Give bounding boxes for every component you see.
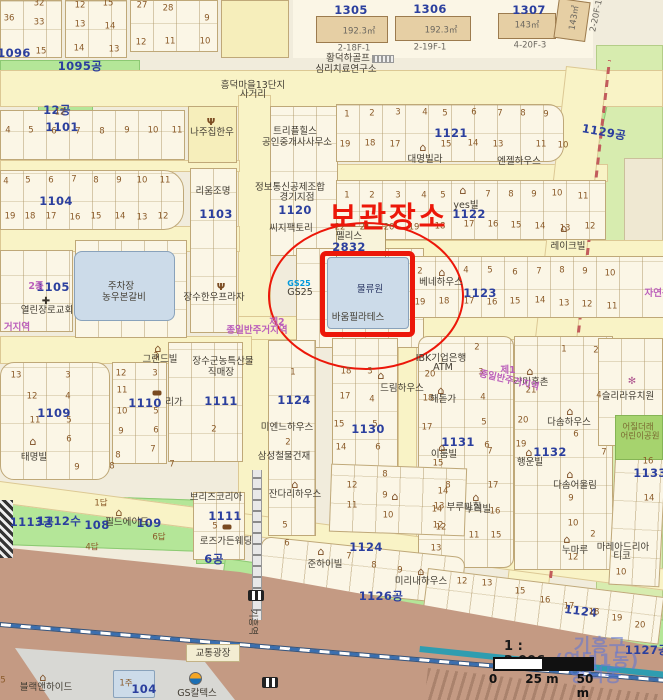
lot-number: 2 — [369, 110, 374, 119]
lot-number: 10 — [616, 569, 627, 578]
area-label: 143㎡ — [515, 22, 540, 31]
place-label: 태명빌 — [21, 453, 47, 463]
place-label: ATM — [433, 363, 453, 373]
lot-number: 27 — [137, 2, 148, 11]
house-icon: ⌂ — [318, 546, 325, 558]
lot-number: 4 — [3, 178, 8, 187]
lot-number: 11 — [160, 177, 171, 186]
lot-number: 5 — [372, 421, 377, 430]
lot-number: 14 — [336, 444, 347, 453]
lot-number: 13 — [434, 503, 445, 512]
lot-number: 5 — [66, 417, 71, 426]
lot-number: 17 — [422, 424, 433, 433]
parcel-number: 1131 — [441, 436, 475, 448]
lot-number: 8 — [93, 177, 98, 186]
lot-number: 7 — [485, 191, 490, 200]
lot-number: 12 — [582, 301, 593, 310]
place-label: 나주집한우 — [190, 128, 234, 138]
area-label: 2-18F-1 — [338, 45, 371, 54]
lot-number: 1 — [344, 111, 349, 120]
lot-number: 9 — [116, 177, 121, 186]
lot-number: 4 — [422, 109, 427, 118]
lot-number: 11 — [30, 417, 41, 426]
place-label: 심리치료연구소 — [315, 65, 376, 75]
lot-number: 7 — [601, 449, 606, 458]
lot-number: 17 — [340, 393, 351, 402]
scale-tick-50: 50 m — [577, 672, 594, 700]
area-label: 192.3㎡ — [343, 28, 376, 37]
parcel-number: 1126공 — [359, 590, 404, 602]
lot-number: 13 — [11, 372, 22, 381]
lot-number: 11 — [347, 502, 358, 511]
lot-number: 13 — [559, 300, 570, 309]
lot-number: 10 — [200, 38, 211, 47]
zoning-label: 2종 — [28, 282, 43, 292]
lot-number: 15 — [433, 460, 444, 469]
lot-number: 9 — [74, 464, 79, 473]
parcel-number: 1306 — [413, 3, 447, 15]
lot-number: 5 — [212, 523, 217, 532]
parcel-number: 1096 — [0, 47, 31, 59]
lot-number: 7 — [346, 553, 351, 562]
place-label: 드림하우스 — [380, 384, 424, 394]
lot-number: 11 — [578, 193, 589, 202]
place-label: 열린장로교회 — [21, 306, 73, 316]
parcel-number: 1129공 — [581, 122, 627, 142]
lot-number: 5 — [25, 177, 30, 186]
house-icon: ⌂ — [564, 534, 571, 546]
place-label: GS25 — [287, 288, 312, 298]
lot-number: 10 — [605, 270, 616, 279]
lot-number: 14 — [535, 223, 546, 232]
place-label: 바움필라테스 — [332, 313, 384, 323]
lot-number: 8 — [559, 267, 564, 276]
area-label: 192.3㎡ — [425, 27, 458, 36]
parcel-number: 104 — [131, 683, 156, 695]
lot-number: 1 — [561, 346, 566, 355]
place-label: yes빌 — [453, 201, 478, 211]
lot-number: 14 — [105, 23, 116, 32]
lot-number: 12 — [136, 39, 147, 48]
lot-number: 15 — [36, 48, 47, 57]
scale-tick-25: 25 m — [525, 672, 558, 686]
lot-number: 8 — [99, 128, 104, 137]
lot-number: 17 — [488, 482, 499, 491]
house-icon: ⌂ — [567, 406, 574, 418]
lot-number: 9 — [568, 495, 573, 504]
scale-tick-0: 0 — [489, 672, 497, 686]
house-icon: ⌂ — [439, 442, 446, 454]
lot-number: 20 — [518, 417, 529, 426]
lot-number: 15 — [510, 298, 521, 307]
parcel-number: 1103 — [199, 208, 233, 220]
lot-number: 6답 — [152, 534, 165, 543]
place-label: 부루마힐 — [447, 503, 482, 513]
house-icon: ⌂ — [420, 142, 427, 154]
house-icon: ⌂ — [473, 492, 480, 504]
lot-number: 4 — [5, 127, 10, 136]
lot-number: 28 — [163, 5, 174, 14]
lot-number: 9 — [204, 15, 209, 24]
place-label: 교통광장 — [196, 649, 231, 659]
parcel-number: 1133 — [633, 467, 663, 479]
place-label: 기흥역 — [247, 609, 257, 635]
place-label: 장수군농특산물 — [192, 357, 253, 367]
house-icon: ⌂ — [526, 447, 533, 459]
lot-number: 2 — [417, 268, 422, 277]
lot-number: 8 — [520, 110, 525, 119]
house-icon: ⌂ — [567, 469, 574, 481]
lot-number: 15 — [511, 222, 522, 231]
place-label: 티코 — [613, 552, 630, 562]
lot-number: 11 — [117, 387, 128, 396]
lot-number: 11 — [469, 532, 480, 541]
lot-number: 5 — [442, 110, 447, 119]
restaurant-icon: Ψ — [207, 118, 216, 129]
lot-number: 17 — [464, 298, 475, 307]
lot-number: 11 — [172, 127, 183, 136]
area-label: 4-20F-3 — [514, 42, 547, 51]
lot-number: 19 — [5, 213, 16, 222]
lot-number: 8 — [382, 471, 387, 480]
lot-number: 15 — [91, 213, 102, 222]
lot-number: 1 — [290, 369, 295, 378]
lot-number: 19 — [415, 299, 426, 308]
lot-number: 10 — [117, 408, 128, 417]
lot-number: 3 — [65, 372, 70, 381]
lot-number: 15 — [103, 0, 114, 8]
lot-number: 13 — [431, 545, 442, 554]
lot-number: 9 — [582, 268, 587, 277]
place-label: 베네하우스 — [419, 278, 463, 288]
place-label: 리가 — [165, 398, 182, 408]
lot-number: 4답 — [85, 544, 98, 553]
gs25-logo: GS25 — [287, 280, 310, 288]
house-icon: ⌂ — [30, 436, 37, 448]
place-label: 브리즈코리아 — [190, 493, 242, 503]
house-icon: ⌂ — [292, 479, 299, 491]
lot-number: 18 — [341, 368, 352, 377]
zoning-label: 종일반주거지역 — [226, 326, 287, 336]
lot-number: 12 — [75, 2, 86, 11]
lot-number: 9 — [531, 191, 536, 200]
lot-number: 18 — [365, 140, 376, 149]
place-label: 삼성철물건재 — [258, 452, 310, 462]
place-label: 엔젤하우스 — [497, 157, 541, 167]
lot-number: 17 — [46, 213, 57, 222]
lot-number: 3 — [367, 368, 372, 377]
house-icon: ⌂ — [438, 385, 445, 397]
lot-number: 10 — [148, 127, 159, 136]
lot-number: 11 — [536, 141, 547, 150]
lot-number: 6 — [153, 427, 158, 436]
lot-number: 15 — [515, 588, 526, 597]
lot-number: 14 — [438, 488, 449, 497]
lot-number: 15 — [491, 532, 502, 541]
place-label: 공인중개사사무소 — [262, 138, 332, 148]
lot-number: 11 — [165, 38, 176, 47]
restaurant-icon: Ψ — [217, 283, 226, 294]
place-label: 장수한우프라자 — [183, 293, 244, 303]
lot-number: 1답 — [94, 500, 107, 509]
lot-number: 12 — [347, 482, 358, 491]
lot-number: 7 — [497, 110, 502, 119]
lot-number: 36 — [4, 15, 15, 24]
lot-number: 12 — [27, 393, 38, 402]
lot-number: 33 — [34, 19, 45, 28]
lot-number: 7 — [150, 446, 155, 455]
lot-number: 13 — [493, 141, 504, 150]
lot-number: 9 — [118, 428, 123, 437]
lot-number: 8 — [115, 452, 120, 461]
parcel-number: 1121 — [434, 127, 468, 139]
place-label: 레이크빌 — [551, 242, 586, 252]
lot-number: 14 — [115, 213, 126, 222]
place-label: 미엔느하우스 — [261, 423, 313, 433]
lot-number: 13 — [482, 580, 493, 589]
lot-number: 6 — [471, 109, 476, 118]
car-icon — [223, 525, 232, 530]
lot-number: 6 — [512, 269, 517, 278]
lot-number: 15 — [334, 421, 345, 430]
lot-number: 2 — [593, 347, 598, 356]
place-label: 직매장 — [208, 368, 234, 378]
place-label: 잔다리하우스 — [269, 490, 321, 500]
lot-number: 5 — [282, 522, 287, 531]
parcel-number: 6공 — [204, 553, 223, 565]
lot-number: 3 — [395, 109, 400, 118]
lot-number: 1주 — [119, 680, 132, 689]
place-label: 경기지점 — [280, 193, 315, 203]
zoning-label: 자연녹지 — [645, 289, 663, 299]
label-layer: 13051306130710961095공12공1101110411031120… — [0, 0, 663, 700]
parcel-number: 1124 — [277, 394, 311, 406]
lot-number: 6 — [48, 177, 53, 186]
lot-number: 9 — [382, 492, 387, 501]
lot-number: 10 — [137, 177, 148, 186]
parcel-number: 1111 — [204, 395, 238, 407]
lot-number: 10 — [568, 520, 579, 529]
lot-number: 2 — [474, 344, 479, 353]
park-label: 어린이공원 — [620, 433, 659, 442]
lot-number: 9 — [124, 127, 129, 136]
house-icon: ⌂ — [527, 366, 534, 378]
parcel-number: 1307 — [512, 4, 546, 16]
lot-number: 15 — [441, 141, 452, 150]
lot-number: 8 — [371, 562, 376, 571]
place-label: 주차장 — [108, 282, 134, 292]
place-label: 준하이빌 — [308, 560, 343, 570]
zoning-label: 거지역 — [4, 323, 30, 333]
building-label: 물류원 — [357, 285, 383, 295]
house-icon: ⌂ — [392, 491, 399, 503]
lot-number: 17 — [390, 141, 401, 150]
lot-number: 13 — [137, 214, 148, 223]
lot-number: 12 — [116, 370, 127, 379]
lot-number: 6 — [284, 540, 289, 549]
lot-number: 19 — [612, 615, 623, 624]
parcel-number: 1120 — [278, 204, 312, 216]
lot-number: 2 — [590, 531, 595, 540]
lot-number: 12 — [457, 578, 468, 587]
lot-number: 16 — [643, 458, 654, 467]
place-label: 트리플힐스 — [273, 127, 317, 137]
house-icon: ⌂ — [418, 566, 425, 578]
place-label: 미리내하우스 — [395, 577, 447, 587]
place-label: 그랜드빌 — [143, 355, 178, 365]
lot-number: 18 — [25, 213, 36, 222]
area-label: 2-19F-1 — [414, 44, 447, 53]
map-canvas[interactable]: 13051306130710961095공12공1101110411031120… — [0, 0, 663, 700]
place-label: 농우본갈비 — [102, 293, 146, 303]
lot-number: 9 — [543, 111, 548, 120]
lot-number: 10 — [558, 142, 569, 151]
lot-number: 16 — [487, 299, 498, 308]
place-label: 사거리 — [240, 90, 266, 100]
lot-number: 20 — [635, 622, 646, 631]
parcel-number: 1112수 — [37, 515, 82, 527]
lot-number: 3 — [152, 370, 157, 379]
lot-number: 14 — [535, 297, 546, 306]
car-icon — [153, 391, 162, 396]
place-label: 로즈가든웨딩 — [200, 537, 252, 547]
scale-bar-white — [493, 657, 546, 671]
lot-number: 9 — [397, 567, 402, 576]
place-label: 슬리라유치원 — [602, 392, 654, 402]
house-icon: ⌂ — [460, 185, 467, 197]
place-label: 황덕하골프 — [326, 54, 370, 64]
lot-number: 5 — [481, 419, 486, 428]
lot-number: 13 — [109, 46, 120, 55]
parcel-number: 1124 — [349, 541, 383, 553]
lot-number: 12 — [433, 522, 444, 531]
lot-number: 7 — [71, 176, 76, 185]
parcel-number: 1111 — [208, 510, 242, 522]
lot-number: 32 — [34, 0, 45, 8]
place-label: 행운빌 — [517, 458, 543, 468]
parcel-number: 1305 — [334, 4, 368, 16]
place-label: 다솜하우스 — [547, 418, 591, 428]
kindergarten-icon: ✻ — [628, 377, 636, 388]
lot-number: 4 — [463, 267, 468, 276]
lot-number: 17 — [564, 603, 575, 612]
house-icon: ⌂ — [155, 343, 162, 355]
place-label: 대명빌라 — [408, 155, 443, 165]
parcel-number: 1104 — [39, 195, 73, 207]
lot-number: 14 — [468, 140, 479, 149]
lot-number: 8 — [109, 463, 114, 472]
place-label: 씨지팩토리 — [269, 224, 313, 234]
lot-number: 7 — [487, 448, 492, 457]
church-icon: ✚ — [42, 297, 50, 308]
parcel-number: 1095공 — [58, 60, 103, 72]
place-label: 다솜어울림 — [553, 481, 597, 491]
house-icon: ⌂ — [40, 672, 47, 684]
lot-number: 19 — [340, 141, 351, 150]
annotation-title: 보관장소 — [330, 202, 449, 232]
lot-number: 6 — [66, 436, 71, 445]
lot-number: 5 — [487, 267, 492, 276]
place-label: 누마루 — [562, 546, 588, 556]
parcel-number: 1130 — [351, 423, 385, 435]
scale-bar: 1 : 2,006 0 25 m 50 m — [485, 639, 597, 689]
lot-number: 16 — [540, 597, 551, 606]
lot-number: 14 — [74, 45, 85, 54]
lot-number: 5 — [28, 127, 33, 136]
place-label: GS칼텍스 — [177, 689, 217, 699]
lot-number: 2 — [211, 426, 216, 435]
lot-number: 18 — [589, 609, 600, 618]
lot-number: 14 — [644, 495, 655, 504]
lot-number: 6 — [375, 444, 380, 453]
place-label: 리움조명 — [196, 187, 231, 197]
lot-number: 16 — [488, 221, 499, 230]
parcel-number: 1101 — [45, 121, 79, 133]
lot-number: 16 — [490, 508, 501, 517]
lot-number: 6 — [51, 128, 56, 137]
lot-number: 17 — [464, 221, 475, 230]
lot-number: 7 — [75, 128, 80, 137]
lot-number: 12 — [585, 223, 596, 232]
lot-number: 2 — [285, 439, 290, 448]
area-label: 2-20F-1 — [589, 0, 605, 33]
lot-number: 16 — [70, 214, 81, 223]
lot-number: 5 — [0, 677, 5, 686]
lot-number: 7 — [536, 268, 541, 277]
lot-number: 4 — [369, 396, 374, 405]
lot-number: 4 — [480, 394, 485, 403]
lot-number: 10 — [552, 190, 563, 199]
lot-number: 11 — [607, 303, 618, 312]
lot-number: 8 — [508, 191, 513, 200]
lot-number: 4 — [65, 393, 70, 402]
lot-number: 18 — [439, 298, 450, 307]
lot-number: 7 — [169, 461, 174, 470]
house-icon: ⌂ — [439, 267, 446, 279]
scale-bar-black — [542, 657, 594, 671]
lot-number: 12 — [55, 109, 66, 118]
lot-number: 5 — [153, 408, 158, 417]
place-label: 블랙앤하이드 — [20, 683, 72, 693]
lot-number: 12 — [158, 213, 169, 222]
place-label: 필드에이드 — [105, 518, 149, 528]
lot-number: 13 — [75, 21, 86, 30]
house-icon: ⌂ — [561, 223, 568, 235]
area-label: 143㎡ — [568, 5, 581, 31]
lot-number: 6 — [573, 431, 578, 440]
parcel-number: 2832 — [332, 241, 366, 253]
lot-number: 10 — [383, 512, 394, 521]
house-icon: ⌂ — [378, 370, 385, 382]
